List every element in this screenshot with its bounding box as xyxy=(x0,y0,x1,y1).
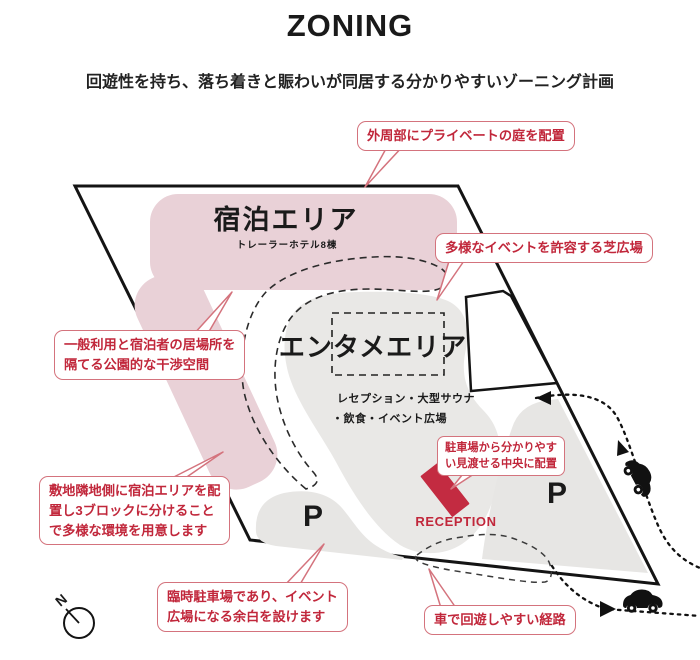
lawn-plaza-shape xyxy=(466,291,557,391)
car-icon xyxy=(623,590,663,613)
reception-label: RECEPTION xyxy=(415,514,496,529)
annotation-reception-placement: 駐車場から分かりやす い見渡せる中央に配置 xyxy=(437,436,565,476)
car-icon xyxy=(620,454,659,500)
annotation-car-route: 車で回遊しやすい経路 xyxy=(424,605,576,635)
bubble-tail xyxy=(429,569,456,608)
arrow-upleft-icon xyxy=(617,440,629,456)
parking-right-label: P xyxy=(547,477,567,511)
annotation-lawn-plaza: 多様なイベントを許容する芝広場 xyxy=(435,233,653,263)
entertainment-zone-detail-2: ・飲食・イベント広場 xyxy=(332,410,447,426)
north-compass-icon xyxy=(64,608,94,638)
annotation-private-garden: 外周部にプライベートの庭を配置 xyxy=(357,121,575,151)
accommodation-zone-label: 宿泊エリア xyxy=(214,198,359,237)
annotation-site-blocks: 敷地隣地側に宿泊エリアを配 置し3ブロックに分けること で多様な環境を用意します xyxy=(39,476,230,545)
arrow-right-icon xyxy=(600,601,616,617)
annotation-buffer-space: 一般利用と宿泊者の居場所を 隔てる公園的な干渉空間 xyxy=(54,330,245,380)
entertainment-zone-detail-1: レセプション・大型サウナ xyxy=(337,390,475,406)
accommodation-zone-detail: トレーラーホテル8棟 xyxy=(237,237,338,251)
bubble-tail xyxy=(365,145,404,187)
bubble-tail xyxy=(284,544,324,586)
entertainment-zone-label: エンタメエリア xyxy=(279,327,467,364)
parking-left-label: P xyxy=(303,500,323,534)
annotation-temp-parking: 臨時駐車場であり、イベント 広場になる余白を設けます xyxy=(157,582,348,632)
